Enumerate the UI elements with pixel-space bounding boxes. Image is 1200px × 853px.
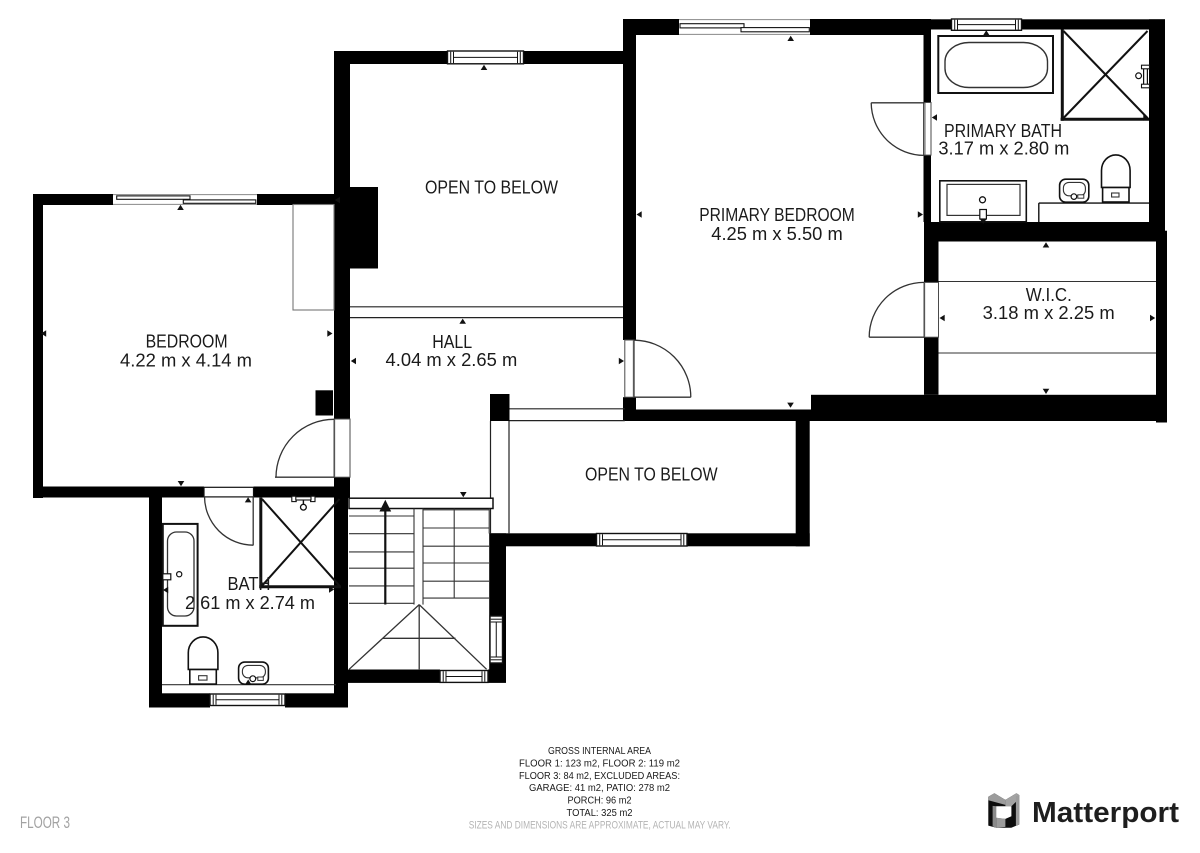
svg-text:BEDROOM: BEDROOM [146,331,228,351]
svg-text:4.04 m x 2.65 m: 4.04 m x 2.65 m [386,350,518,370]
svg-text:TOTAL: 325 m2: TOTAL: 325 m2 [567,808,633,819]
svg-text:OPEN TO BELOW: OPEN TO BELOW [585,464,718,484]
svg-text:4.25 m x 5.50 m: 4.25 m x 5.50 m [711,224,843,244]
svg-text:FLOOR 3: 84 m2, EXCLUDED AREAS: FLOOR 3: 84 m2, EXCLUDED AREAS: [519,771,680,782]
svg-text:SIZES AND DIMENSIONS ARE APPRO: SIZES AND DIMENSIONS ARE APPROXIMATE, AC… [469,819,731,831]
svg-text:Matterport: Matterport [1032,797,1180,829]
svg-text:3.17 m x 2.80 m: 3.17 m x 2.80 m [938,138,1069,158]
svg-text:GARAGE: 41 m2, PATIO: 278 m2: GARAGE: 41 m2, PATIO: 278 m2 [529,783,670,794]
svg-text:HALL: HALL [432,332,472,352]
svg-text:4.22 m x 4.14 m: 4.22 m x 4.14 m [120,350,252,370]
svg-text:OPEN TO BELOW: OPEN TO BELOW [425,178,558,198]
svg-text:FLOOR 1: 123 m2, FLOOR 2: 119: FLOOR 1: 123 m2, FLOOR 2: 119 m2 [519,759,680,770]
svg-text:GROSS INTERNAL AREA: GROSS INTERNAL AREA [548,746,651,757]
svg-text:W.I.C.: W.I.C. [1026,285,1072,305]
svg-text:PORCH: 96 m2: PORCH: 96 m2 [568,796,632,807]
svg-text:FLOOR 3: FLOOR 3 [20,813,70,832]
svg-text:2.61 m x 2.74 m: 2.61 m x 2.74 m [185,593,315,613]
svg-text:PRIMARY BEDROOM: PRIMARY BEDROOM [699,205,855,225]
svg-text:3.18 m x 2.25 m: 3.18 m x 2.25 m [983,303,1115,323]
svg-text:BATH: BATH [228,574,271,594]
